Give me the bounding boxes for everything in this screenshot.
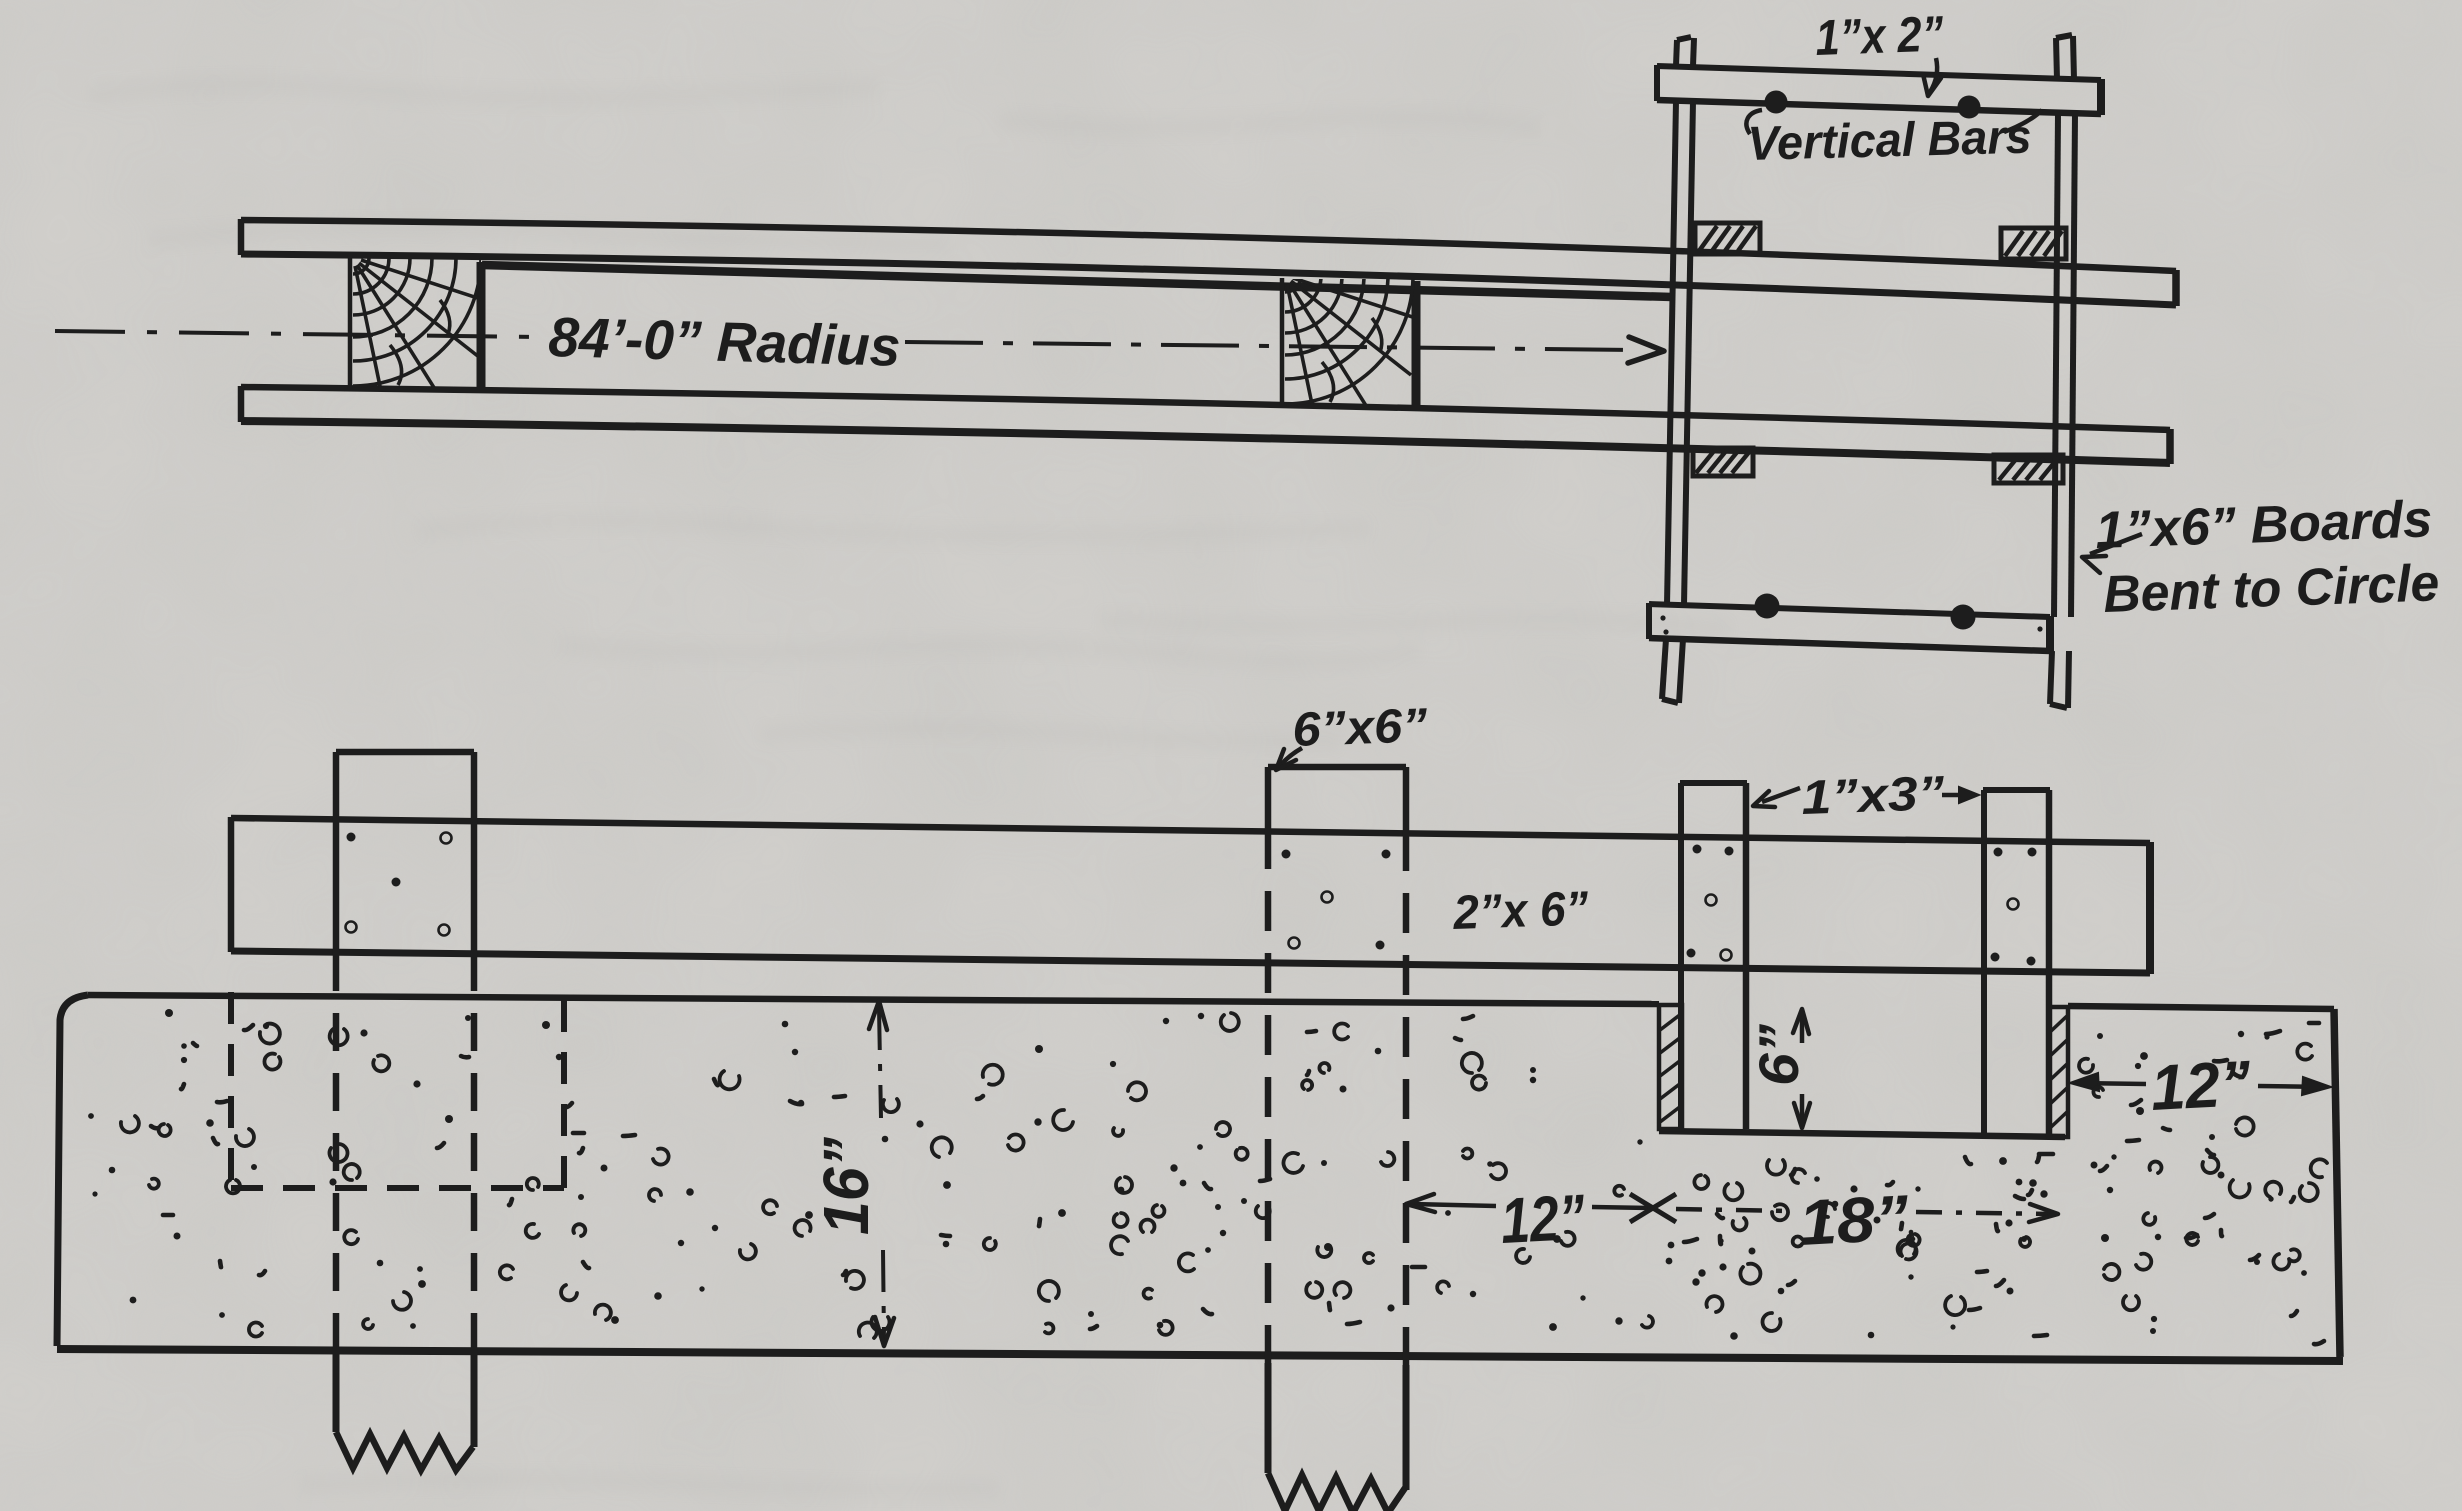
svg-text:16”: 16” (810, 1137, 882, 1235)
svg-text:1”x3”: 1”x3” (1801, 767, 1946, 825)
svg-text:12”: 12” (2149, 1047, 2253, 1124)
svg-text:Vertical Bars: Vertical Bars (1747, 111, 2032, 171)
svg-text:6”x6”: 6”x6” (1292, 699, 1429, 757)
svg-text:Bent to Circle: Bent to Circle (2102, 554, 2440, 624)
svg-text:6”: 6” (1747, 1024, 1810, 1086)
svg-text:1”x 2”: 1”x 2” (1814, 6, 1944, 66)
svg-text:2”x 6”: 2”x 6” (1452, 882, 1590, 940)
svg-text:84’-0” Radius: 84’-0” Radius (548, 305, 902, 378)
svg-text:18”: 18” (1797, 1181, 1911, 1259)
svg-text:1”x6” Boards: 1”x6” Boards (2094, 490, 2433, 560)
